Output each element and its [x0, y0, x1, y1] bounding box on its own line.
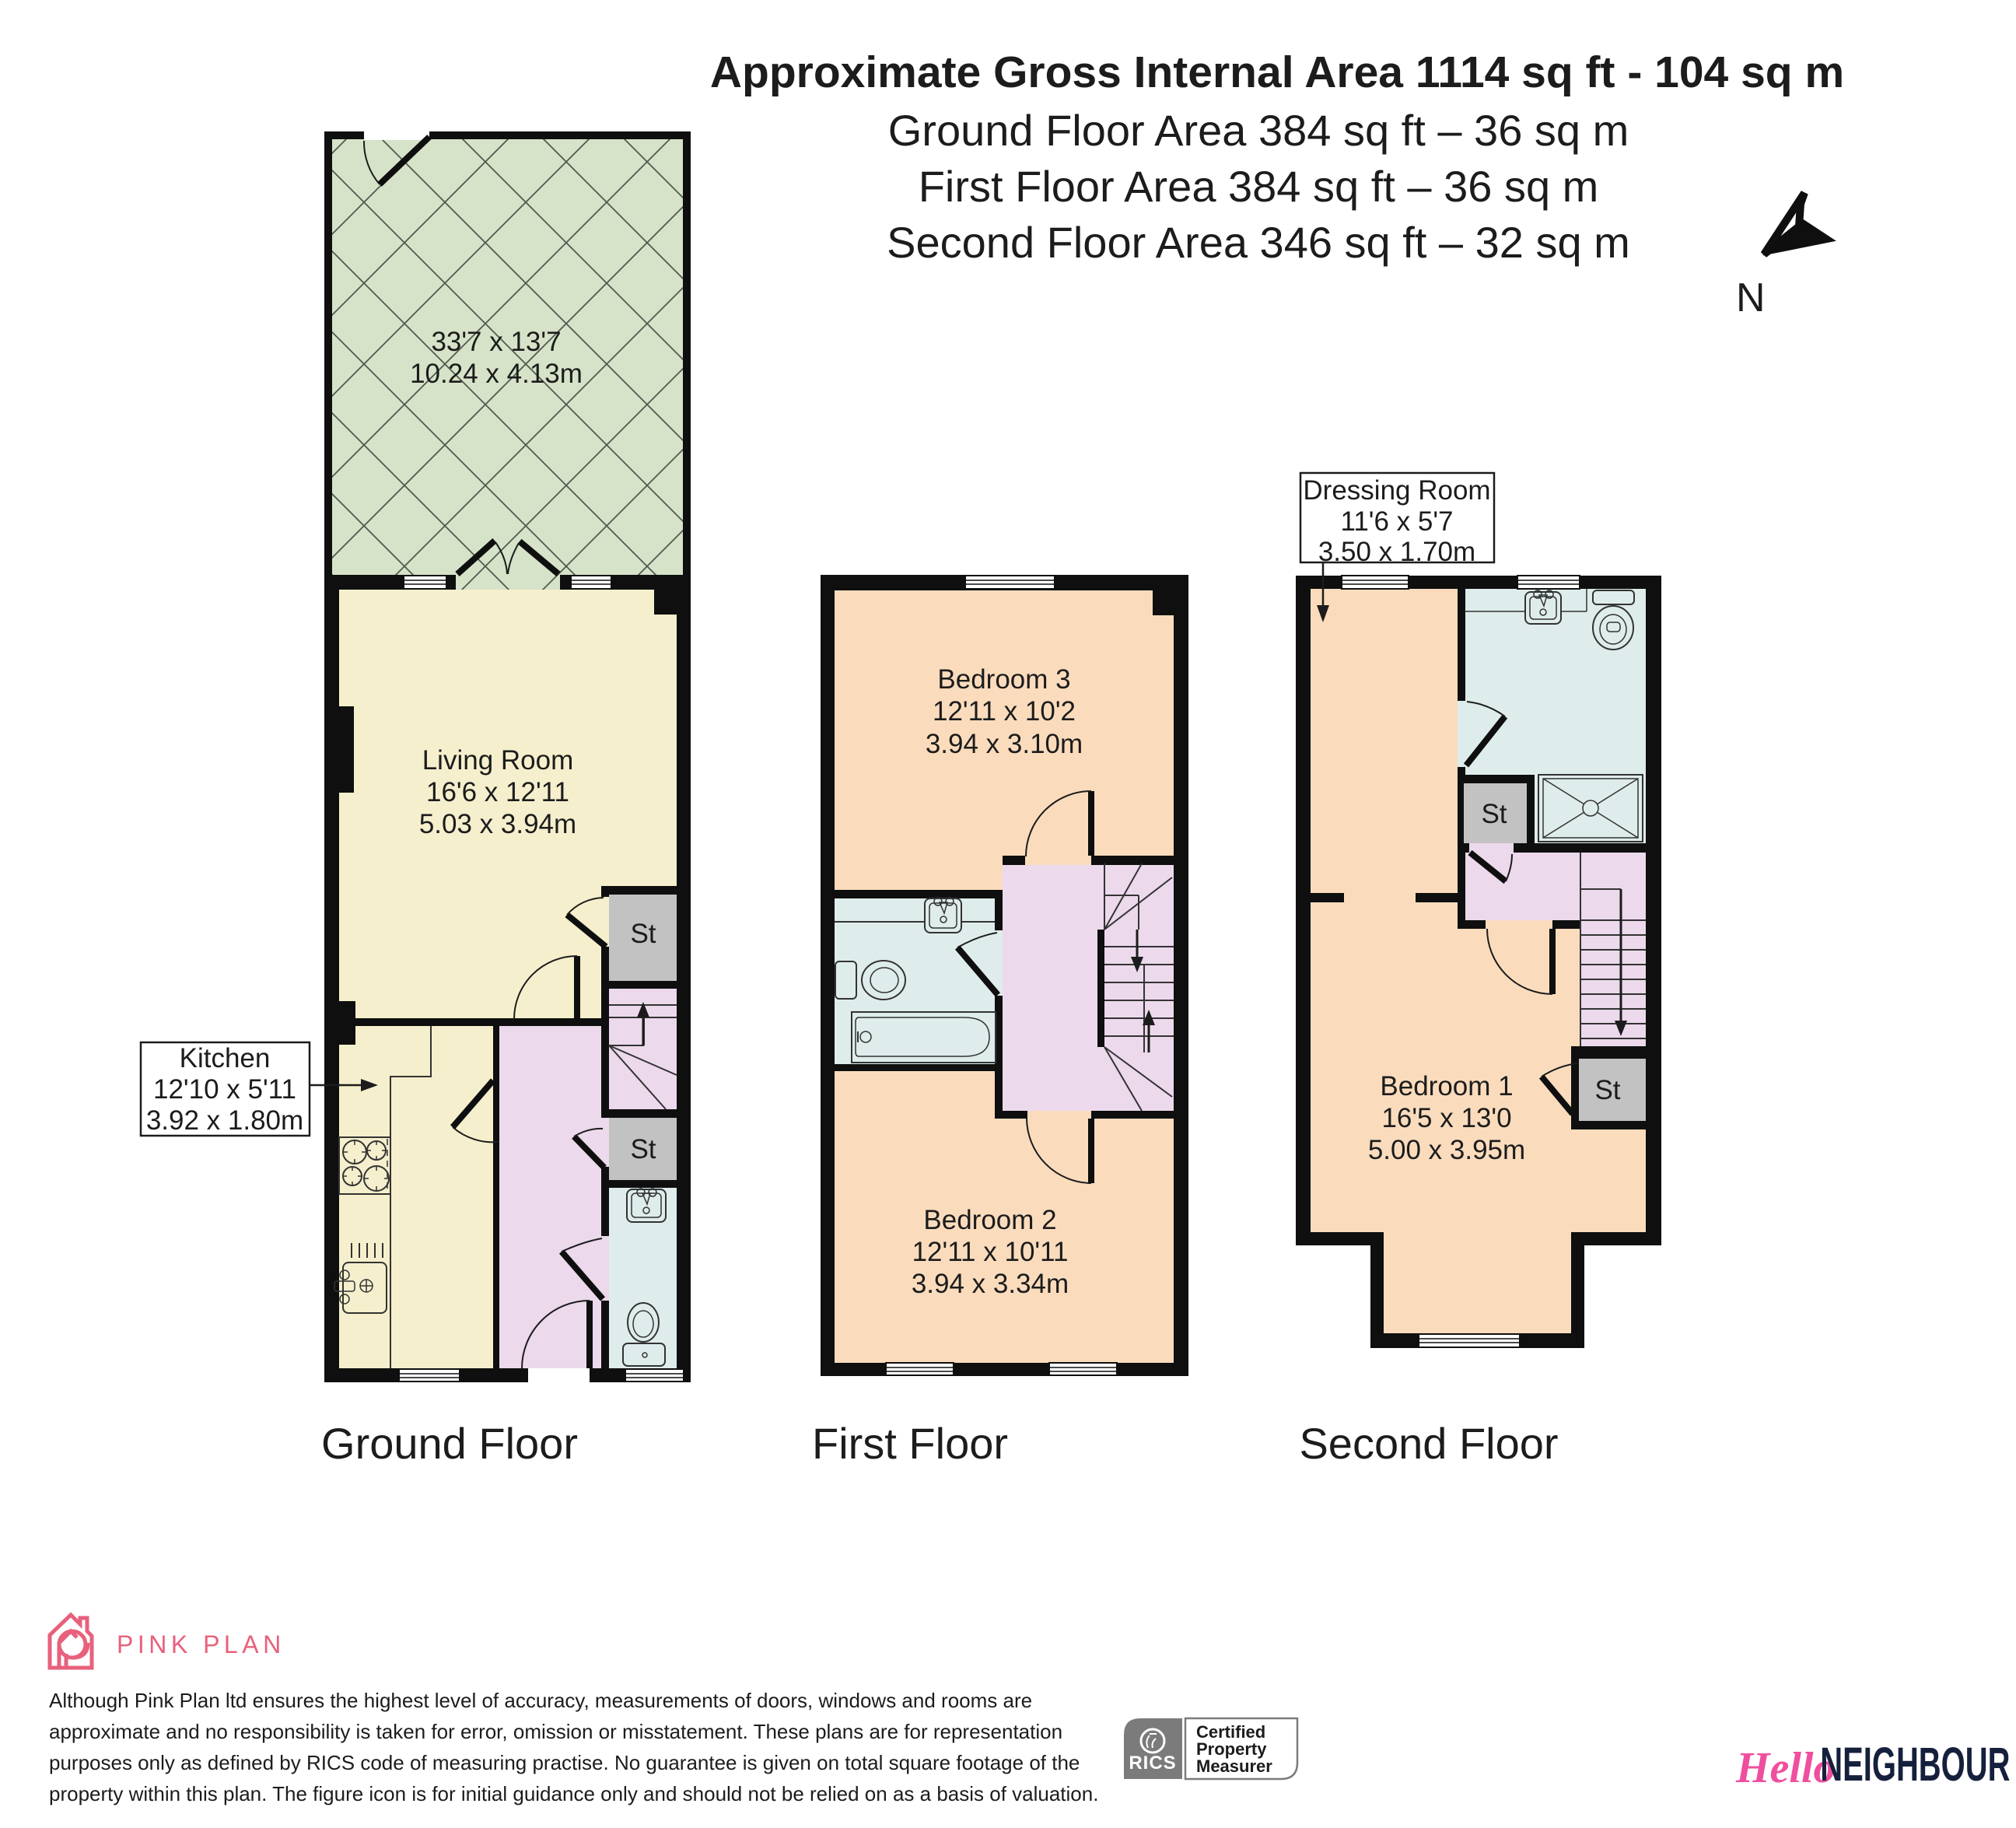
svg-text:Measurer: Measurer	[1196, 1756, 1272, 1776]
svg-text:Dressing Room: Dressing Room	[1303, 475, 1490, 506]
svg-text:RICS: RICS	[1129, 1753, 1176, 1774]
svg-text:11'6 x 5'7: 11'6 x 5'7	[1340, 506, 1453, 537]
svg-text:property within this plan. The: property within this plan. The figure ic…	[49, 1782, 1098, 1805]
svg-text:purposes only as defined by RI: purposes only as defined by RICS code of…	[49, 1751, 1080, 1774]
svg-text:PINK PLAN: PINK PLAN	[117, 1630, 285, 1658]
svg-text:3.92 x 1.80m: 3.92 x 1.80m	[146, 1105, 303, 1136]
svg-text:3.50 x 1.70m: 3.50 x 1.70m	[1318, 537, 1475, 567]
svg-text:10.24 x 4.13m: 10.24 x 4.13m	[410, 359, 583, 389]
svg-text:12'11 x 10'11: 12'11 x 10'11	[912, 1237, 1069, 1267]
svg-text:Second Floor: Second Floor	[1299, 1419, 1558, 1468]
svg-text:33'7 x 13'7: 33'7 x 13'7	[431, 327, 561, 357]
svg-text:St: St	[1594, 1075, 1620, 1105]
svg-text:First Floor Area 384 sq ft – 3: First Floor Area 384 sq ft – 36 sq m	[919, 162, 1599, 211]
svg-text:3.94 x 3.10m: 3.94 x 3.10m	[926, 729, 1083, 759]
svg-text:3.94 x 3.34m: 3.94 x 3.34m	[912, 1269, 1069, 1299]
svg-text:Second Floor Area 346 sq ft –: Second Floor Area 346 sq ft – 32 sq m	[887, 218, 1630, 267]
svg-text:St: St	[630, 919, 656, 949]
svg-text:12'11 x 10'2: 12'11 x 10'2	[933, 696, 1076, 727]
svg-text:Kitchen: Kitchen	[180, 1043, 271, 1073]
svg-text:16'6 x 12'11: 16'6 x 12'11	[426, 777, 569, 807]
svg-text:NEIGHBOUR: NEIGHBOUR	[1820, 1737, 2010, 1791]
svg-text:Bedroom 3: Bedroom 3	[937, 664, 1070, 695]
svg-text:12'10 x 5'11: 12'10 x 5'11	[153, 1074, 296, 1105]
svg-text:5.03 x 3.94m: 5.03 x 3.94m	[419, 809, 576, 839]
svg-text:First Floor: First Floor	[812, 1419, 1008, 1468]
svg-text:Ground Floor: Ground Floor	[321, 1419, 578, 1468]
svg-text:Bedroom 2: Bedroom 2	[923, 1205, 1056, 1235]
svg-text:16'5 x 13'0: 16'5 x 13'0	[1381, 1103, 1511, 1133]
svg-text:St: St	[1481, 799, 1507, 829]
svg-text:St: St	[630, 1134, 656, 1164]
svg-text:approximate and no responsibil: approximate and no responsibility is tak…	[49, 1720, 1062, 1743]
svg-text:Ground Floor Area 384 sq ft –: Ground Floor Area 384 sq ft – 36 sq m	[888, 106, 1629, 155]
svg-text:5.00 x 3.95m: 5.00 x 3.95m	[1368, 1135, 1525, 1165]
svg-text:Bedroom 1: Bedroom 1	[1380, 1071, 1513, 1101]
svg-text:N: N	[1736, 275, 1766, 320]
svg-text:Although Pink Plan ltd ensures: Although Pink Plan ltd ensures the highe…	[49, 1689, 1032, 1712]
svg-text:Approximate Gross Internal Are: Approximate Gross Internal Area 1114 sq …	[710, 47, 1844, 97]
svg-text:Living Room: Living Room	[422, 745, 574, 776]
